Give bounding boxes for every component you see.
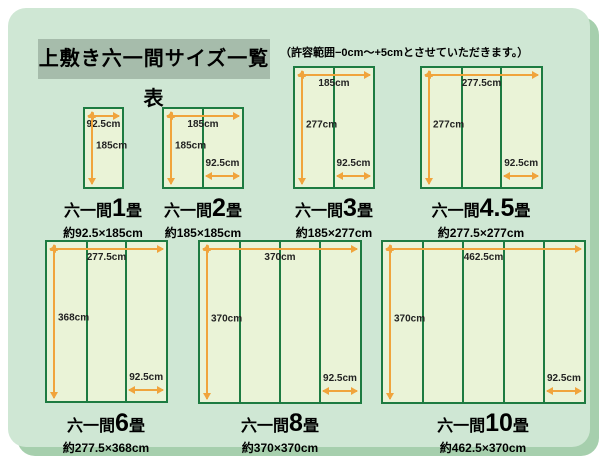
height-dimension-label: 277cm xyxy=(306,120,337,131)
panel-width-arrow xyxy=(129,389,163,391)
height-arrow xyxy=(170,112,172,184)
tolerance-note: （許容範囲−0cm〜+5cmとさせていただきます。） xyxy=(280,44,528,60)
diagram-name-prefix: 六一間 xyxy=(432,203,480,220)
mat-divider xyxy=(279,242,281,402)
mat-divider xyxy=(125,242,127,401)
diagram-size-8jo: 約370×370cm xyxy=(170,439,390,456)
panel-width-label: 92.5cm xyxy=(322,373,358,384)
diagram-name-prefix: 六一間 xyxy=(437,418,485,435)
height-arrow xyxy=(301,71,303,184)
diagram-name-number: 8 xyxy=(289,409,303,437)
diagram-name-suffix: 畳 xyxy=(303,418,319,435)
mat-rect-2jo: 185cm185cm92.5cm xyxy=(162,107,244,189)
diagram-name-suffix: 畳 xyxy=(514,203,530,220)
diagram-name-8jo: 六一間8畳 xyxy=(170,409,390,438)
mat-rect-6jo: 277.5cm368cm92.5cm xyxy=(45,240,168,403)
diagram-name-10jo: 六一間10畳 xyxy=(373,409,593,438)
height-arrow xyxy=(389,245,391,399)
diagram-name-number: 4.5 xyxy=(480,194,515,222)
diagram-name-suffix: 畳 xyxy=(513,418,529,435)
height-dimension-label: 370cm xyxy=(394,313,425,324)
diagram-name-prefix: 六一間 xyxy=(67,418,115,435)
height-dimension-label: 185cm xyxy=(175,141,206,152)
diagram-name-number: 6 xyxy=(115,409,129,437)
diagram-name-suffix: 畳 xyxy=(129,418,145,435)
page-title: 上敷き六一間サイズ一覧表 xyxy=(38,39,270,79)
diagram-name-prefix: 六一間 xyxy=(295,203,343,220)
width-arrow xyxy=(203,248,357,250)
mat-rect-10jo: 462.5cm370cm92.5cm xyxy=(381,240,586,404)
mat-divider xyxy=(543,242,545,402)
width-dimension-label: 277.5cm xyxy=(47,252,166,263)
height-dimension-label: 370cm xyxy=(211,313,242,324)
diagram-name-4-5jo: 六一間4.5畳 xyxy=(371,194,591,223)
width-arrow xyxy=(425,74,538,76)
height-dimension-label: 368cm xyxy=(58,313,89,324)
mat-rect-1jo: 92.5cm185cm xyxy=(83,107,124,189)
width-dimension-label: 370cm xyxy=(200,252,360,263)
diagram-size-10jo: 約462.5×370cm xyxy=(373,439,593,456)
width-arrow xyxy=(298,74,370,76)
width-dimension-label: 277.5cm xyxy=(422,78,541,89)
height-arrow xyxy=(53,245,55,398)
mat-divider xyxy=(462,242,464,402)
panel-width-label: 92.5cm xyxy=(503,158,539,169)
width-dimension-label: 185cm xyxy=(164,119,242,130)
height-dimension-label: 185cm xyxy=(96,141,127,152)
height-dimension-label: 277cm xyxy=(433,120,464,131)
panel-width-label: 92.5cm xyxy=(336,158,371,169)
width-dimension-label: 462.5cm xyxy=(383,252,584,263)
panel-width-arrow xyxy=(323,390,357,392)
panel-width-label: 92.5cm xyxy=(128,372,164,383)
panel-width-label: 92.5cm xyxy=(205,158,240,169)
diagram-name-number: 10 xyxy=(485,409,513,437)
diagram-name-prefix: 六一間 xyxy=(241,418,289,435)
height-arrow xyxy=(91,112,93,184)
diagram-size-4-5jo: 約277.5×277cm xyxy=(371,224,591,241)
diagram-name-number: 3 xyxy=(343,194,357,222)
panel-width-label: 92.5cm xyxy=(546,373,582,384)
width-dimension-label: 185cm xyxy=(295,78,373,89)
width-arrow xyxy=(386,248,581,250)
panel-width-arrow xyxy=(206,175,239,177)
height-arrow xyxy=(206,245,208,399)
width-arrow xyxy=(167,115,239,117)
background-panel: 上敷き六一間サイズ一覧表 （許容範囲−0cm〜+5cmとさせていただきます。） … xyxy=(8,8,590,447)
mat-rect-4-5jo: 277.5cm277cm92.5cm xyxy=(420,66,543,189)
mat-divider xyxy=(319,242,321,402)
width-arrow xyxy=(50,248,163,250)
panel-width-arrow xyxy=(504,175,538,177)
diagram-name-prefix: 六一間 xyxy=(164,203,212,220)
panel-width-arrow xyxy=(337,175,370,177)
height-arrow xyxy=(428,71,430,184)
mat-rect-8jo: 370cm370cm92.5cm xyxy=(198,240,362,404)
mat-divider xyxy=(503,242,505,402)
mat-rect-3jo: 185cm277cm92.5cm xyxy=(293,66,375,189)
panel-width-arrow xyxy=(547,390,581,392)
